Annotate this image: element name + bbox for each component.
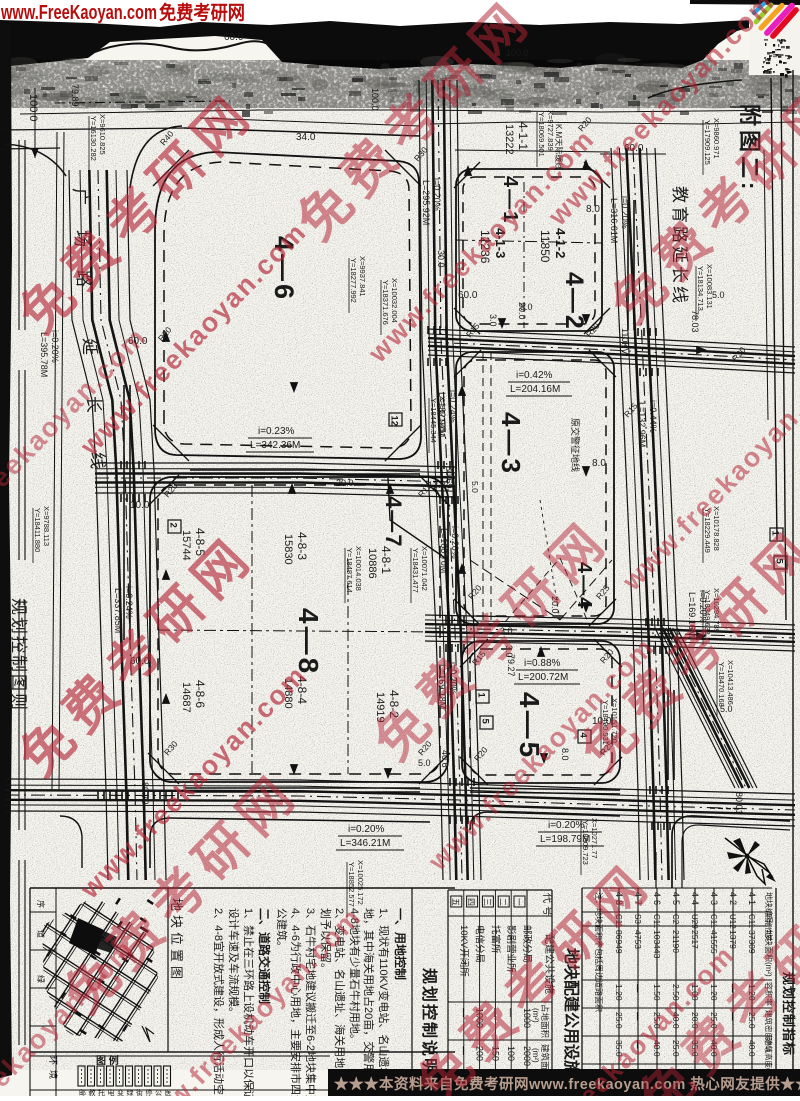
svg-text:Y=17909.125: Y=17909.125	[703, 120, 712, 165]
svg-text:置: 置	[169, 949, 184, 962]
svg-text:Y=18609.723: Y=18609.723	[581, 820, 590, 865]
svg-text:教: 教	[89, 1088, 96, 1096]
svg-text:图: 图	[169, 966, 184, 979]
svg-text:79.89: 79.89	[70, 84, 80, 107]
svg-text:60.0: 60.0	[224, 32, 244, 43]
svg-text:X=10071.042: X=10071.042	[420, 546, 429, 591]
svg-text:邮: 邮	[79, 1088, 86, 1096]
svg-text:道: 道	[36, 930, 46, 938]
svg-text:34.0: 34.0	[296, 132, 316, 143]
svg-text:4-1: 4-1	[747, 892, 757, 905]
svg-text:10.0: 10.0	[130, 500, 150, 511]
svg-text:4-8-1: 4-8-1	[379, 546, 393, 574]
svg-text:80.01: 80.01	[734, 792, 744, 815]
svg-text:10886: 10886	[366, 548, 378, 579]
svg-text:2: 2	[168, 523, 179, 528]
svg-text:X=9610.825: X=9610.825	[98, 114, 107, 155]
svg-text:1.50: 1.50	[652, 984, 662, 1001]
svg-text:4-8-6: 4-8-6	[193, 680, 207, 708]
svg-text:40.6: 40.6	[440, 750, 450, 768]
svg-text:C11: C11	[709, 914, 718, 929]
svg-text:www.FreeKaoyan.com: www.FreeKaoyan.com	[0, 2, 157, 24]
svg-text:Y=16130.282: Y=16130.282	[89, 116, 98, 161]
svg-text:15830: 15830	[282, 534, 294, 565]
svg-text:14687: 14687	[180, 682, 192, 713]
svg-text:四: 四	[467, 898, 476, 906]
svg-text:i=0.20%: i=0.20%	[548, 820, 585, 831]
svg-text:Y=18371.676: Y=18371.676	[381, 280, 390, 325]
svg-text:4-1-2: 4-1-2	[553, 228, 568, 258]
svg-text:境: 境	[48, 1070, 59, 1079]
svg-text:4—7: 4—7	[381, 496, 406, 548]
svg-text:电: 电	[108, 1088, 115, 1096]
svg-text:i=0.20%: i=0.20%	[450, 526, 460, 559]
svg-text:L=342.36M: L=342.36M	[250, 440, 300, 451]
svg-text:8.0: 8.0	[592, 458, 606, 469]
svg-text:L=200.72M: L=200.72M	[518, 672, 568, 683]
svg-text:公建筑。: 公建筑。	[275, 908, 289, 952]
svg-text:i=0.20%: i=0.20%	[620, 196, 630, 229]
svg-text:Y=18431.477: Y=18431.477	[411, 548, 420, 593]
svg-text:4、4-6为行政中心用地，主要安排市四大: 4、4-6为行政中心用地，主要安排市四大	[289, 908, 303, 1096]
svg-text:2517: 2517	[690, 930, 700, 949]
svg-text:5.0: 5.0	[418, 758, 431, 768]
svg-text:25.0: 25.0	[614, 1012, 624, 1029]
svg-text:1.20: 1.20	[614, 984, 624, 1001]
svg-text:设计车速及车流规模。: 设计车速及车流规模。	[227, 908, 241, 1018]
svg-text:教: 教	[670, 186, 689, 203]
svg-text:—: —	[633, 984, 643, 993]
svg-text:序: 序	[36, 900, 46, 908]
svg-text:4-3: 4-3	[709, 892, 719, 905]
svg-text:12: 12	[389, 416, 400, 427]
svg-text:4—2: 4—2	[560, 272, 588, 331]
svg-text:代: 代	[541, 893, 553, 903]
svg-text:L=132.96M: L=132.96M	[637, 402, 647, 447]
svg-text:C11: C11	[747, 914, 756, 929]
svg-text:X=9788.113: X=9788.113	[42, 506, 51, 546]
svg-text:Y=18277.992: Y=18277.992	[349, 258, 358, 303]
svg-text:4-2: 4-2	[728, 892, 738, 905]
svg-text:L=337.85M: L=337.85M	[113, 588, 123, 633]
svg-text:广: 广	[70, 188, 89, 205]
svg-text:免费考研网: 免费考研网	[159, 1, 245, 24]
svg-text:37309: 37309	[747, 930, 757, 954]
svg-text:5: 5	[480, 719, 491, 725]
svg-text:C11: C11	[652, 914, 661, 929]
svg-text:11850: 11850	[538, 230, 552, 263]
svg-text:110KV: 110KV	[620, 328, 630, 354]
svg-text:绿: 绿	[127, 1088, 134, 1096]
svg-text:Y=18487.614: Y=18487.614	[345, 548, 354, 593]
svg-text:Y=18852.577: Y=18852.577	[347, 862, 356, 907]
svg-text:3.0: 3.0	[488, 314, 498, 327]
svg-text:103443: 103443	[652, 930, 662, 959]
svg-text:X=10413.486: X=10413.486	[726, 660, 735, 705]
svg-text:i=0.24%: i=0.24%	[448, 390, 458, 423]
svg-text:环: 环	[48, 1056, 58, 1065]
svg-text:4-4: 4-4	[690, 892, 700, 905]
svg-text:X=10014.038: X=10014.038	[354, 546, 363, 591]
svg-text:13222: 13222	[503, 124, 515, 155]
svg-text:i=0.20%: i=0.20%	[348, 824, 385, 835]
svg-text:X=10083.131: X=10083.131	[705, 264, 714, 309]
svg-text:4-8-3: 4-8-3	[295, 532, 309, 560]
svg-text:U29: U29	[690, 914, 699, 929]
svg-text:二: 二	[498, 898, 507, 906]
svg-text:i=0.44%: i=0.44%	[648, 400, 658, 433]
svg-text:一: 一	[514, 898, 523, 906]
svg-text:2000: 2000	[522, 1046, 532, 1066]
svg-text:4—3: 4—3	[496, 412, 526, 476]
svg-text:一、用地控制: 一、用地控制	[393, 908, 408, 980]
svg-text:15744: 15744	[180, 530, 192, 561]
svg-text:10KV开闭所: 10KV开闭所	[458, 925, 470, 977]
svg-text:街: 街	[136, 1088, 143, 1096]
svg-text:100.0: 100.0	[27, 94, 39, 122]
svg-text:80.70: 80.70	[140, 782, 150, 805]
svg-text:L=316.61M: L=316.61M	[609, 198, 619, 243]
svg-text:X=9937.841: X=9937.841	[358, 256, 367, 297]
svg-text:U12: U12	[728, 914, 737, 929]
svg-text:78.03: 78.03	[690, 310, 700, 333]
svg-text:X=10025.172: X=10025.172	[356, 860, 365, 905]
svg-text:托: 托	[98, 1088, 105, 1096]
svg-text:5.0: 5.0	[520, 302, 533, 312]
svg-text:托富所: 托富所	[489, 925, 501, 954]
svg-text:5.0: 5.0	[470, 481, 480, 493]
svg-text:三: 三	[482, 898, 491, 906]
svg-text:1379: 1379	[728, 930, 738, 949]
svg-text:60.0: 60.0	[458, 290, 478, 301]
svg-text:1、现状有110KV变电站、名山遗址及名: 1、现状有110KV变电站、名山遗址及名	[377, 908, 391, 1096]
svg-text:100.0: 100.0	[370, 88, 380, 111]
svg-text:电信分局: 电信分局	[474, 925, 486, 963]
svg-text:L=295.92M: L=295.92M	[421, 180, 431, 225]
svg-text:Y=18411.880: Y=18411.880	[33, 508, 42, 552]
svg-text:停: 停	[146, 1088, 153, 1096]
svg-text:4-1-1: 4-1-1	[516, 122, 530, 150]
svg-text:L=204.16M: L=204.16M	[510, 384, 560, 395]
svg-text:i=0.42%: i=0.42%	[516, 370, 553, 381]
svg-text:L=132.97M: L=132.97M	[437, 392, 447, 437]
svg-text:X=9860.971: X=9860.971	[712, 118, 721, 159]
svg-text:20.0: 20.0	[336, 478, 354, 488]
svg-text:Y=18445.344: Y=18445.344	[429, 398, 438, 443]
svg-text:X=9727.839: X=9727.839	[546, 110, 555, 151]
svg-text:绿: 绿	[36, 975, 45, 983]
svg-text:L=346.21M: L=346.21M	[340, 838, 390, 849]
svg-text:i=0.88%: i=0.88%	[524, 658, 561, 669]
svg-text:4-5: 4-5	[671, 892, 681, 905]
svg-text:地，其中海关用地占20亩，交警用地6: 地，其中海关用地占20亩，交警用地6	[362, 908, 376, 1091]
svg-text:i=0.24%: i=0.24%	[124, 586, 134, 619]
svg-text:4—8: 4—8	[293, 608, 324, 676]
svg-text:21190: 21190	[671, 930, 681, 953]
svg-text:变: 变	[117, 1088, 124, 1096]
svg-text:4753: 4753	[633, 930, 643, 949]
svg-text:延: 延	[80, 338, 99, 355]
svg-text:★★★本资料来自免费考研网www.freekaoyan.co: ★★★本资料来自免费考研网www.freekaoyan.com 热心网友提供★★…	[334, 1075, 800, 1093]
svg-text:L=168.70M: L=168.70M	[439, 528, 449, 573]
svg-text:80.69: 80.69	[444, 466, 454, 489]
svg-text:5.0: 5.0	[712, 290, 725, 300]
svg-text:Y=18069.501: Y=18069.501	[537, 112, 546, 157]
svg-text:C2: C2	[671, 914, 680, 925]
svg-text:5.0: 5.0	[720, 704, 733, 714]
svg-text:原交警征地线: 原交警征地线	[570, 418, 581, 472]
svg-text:i=0.23%: i=0.23%	[258, 426, 295, 437]
svg-text:i=0.20%: i=0.20%	[432, 178, 442, 211]
svg-text:五: 五	[451, 898, 460, 906]
svg-text:号: 号	[541, 906, 553, 916]
svg-text:规划控制图则: 规划控制图则	[9, 598, 28, 712]
svg-text:X=10271.77: X=10271.77	[590, 818, 599, 859]
